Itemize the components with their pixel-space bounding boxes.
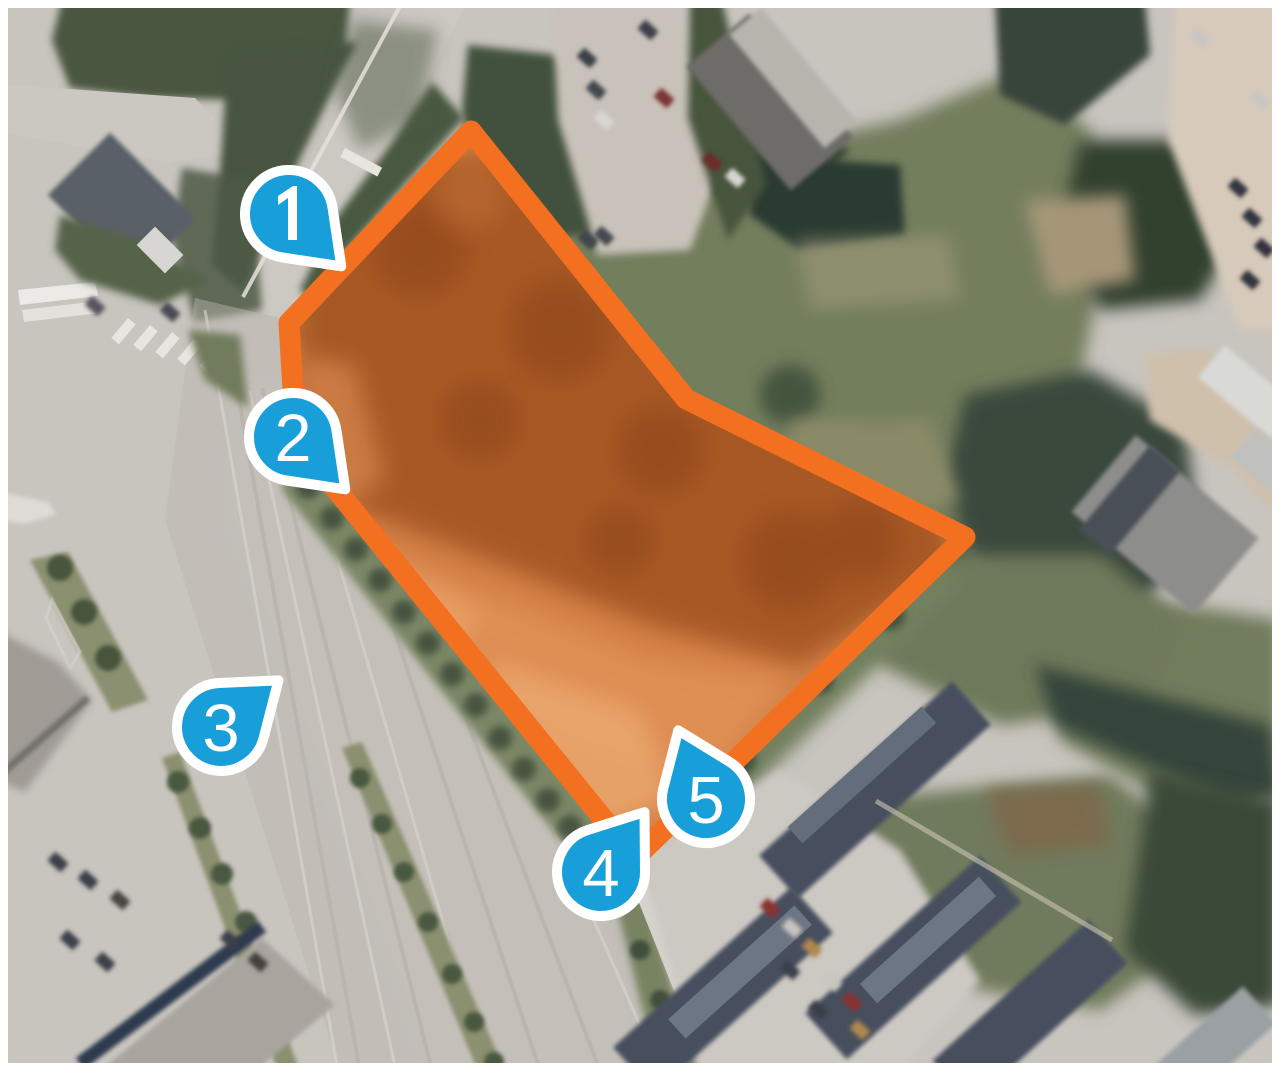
svg-text:3: 3 xyxy=(202,691,239,766)
svg-text:5: 5 xyxy=(687,763,724,838)
svg-text:2: 2 xyxy=(274,401,311,476)
svg-text:4: 4 xyxy=(582,836,619,911)
